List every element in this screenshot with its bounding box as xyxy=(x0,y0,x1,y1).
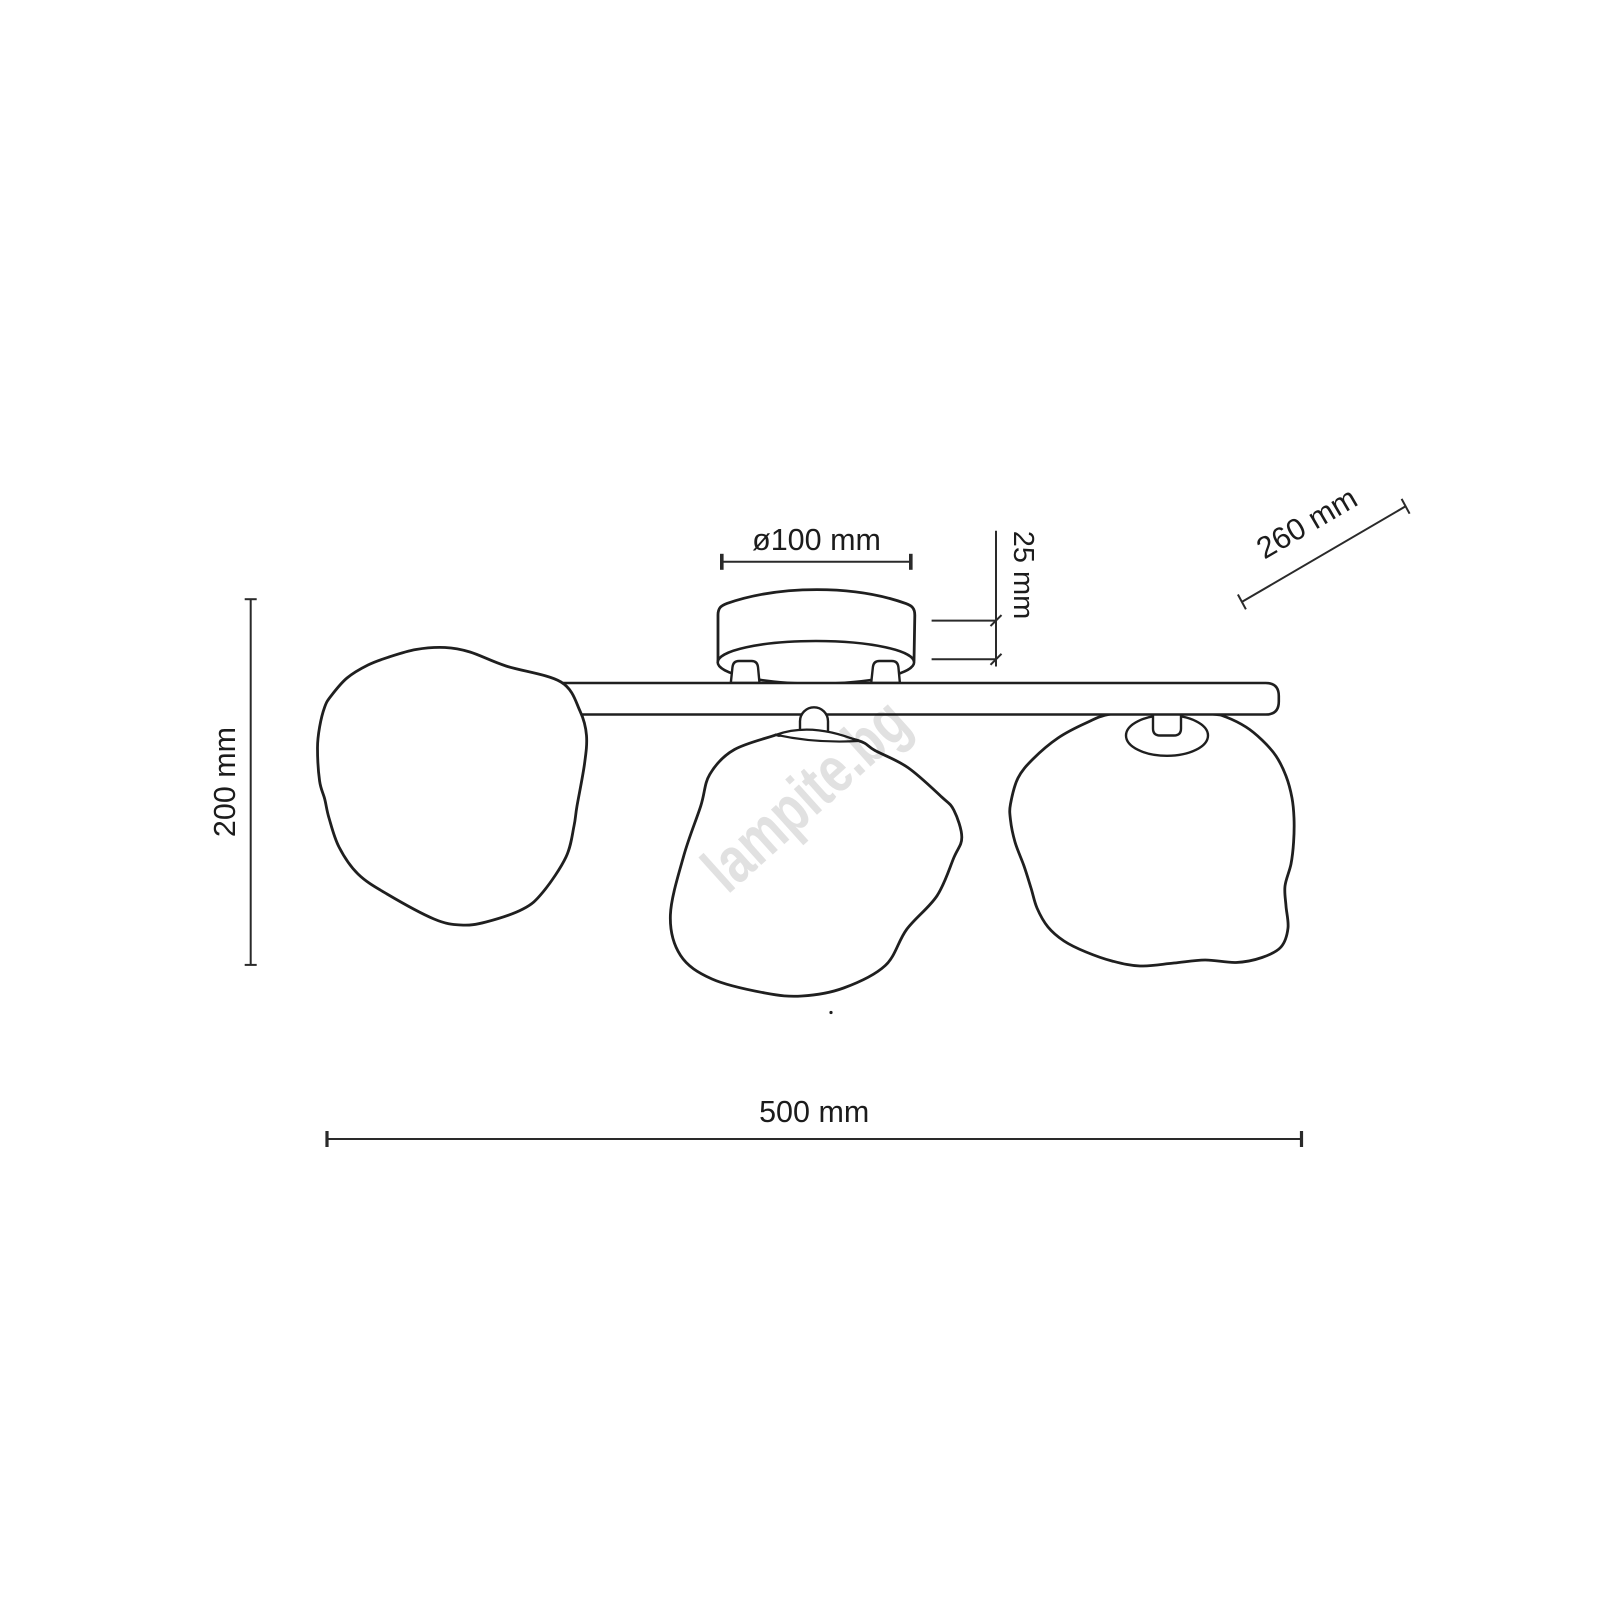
svg-text:ø100 mm: ø100 mm xyxy=(752,523,881,557)
svg-text:500 mm: 500 mm xyxy=(759,1095,869,1129)
svg-text:200 mm: 200 mm xyxy=(208,727,242,837)
svg-text:25 mm: 25 mm xyxy=(1007,531,1039,620)
